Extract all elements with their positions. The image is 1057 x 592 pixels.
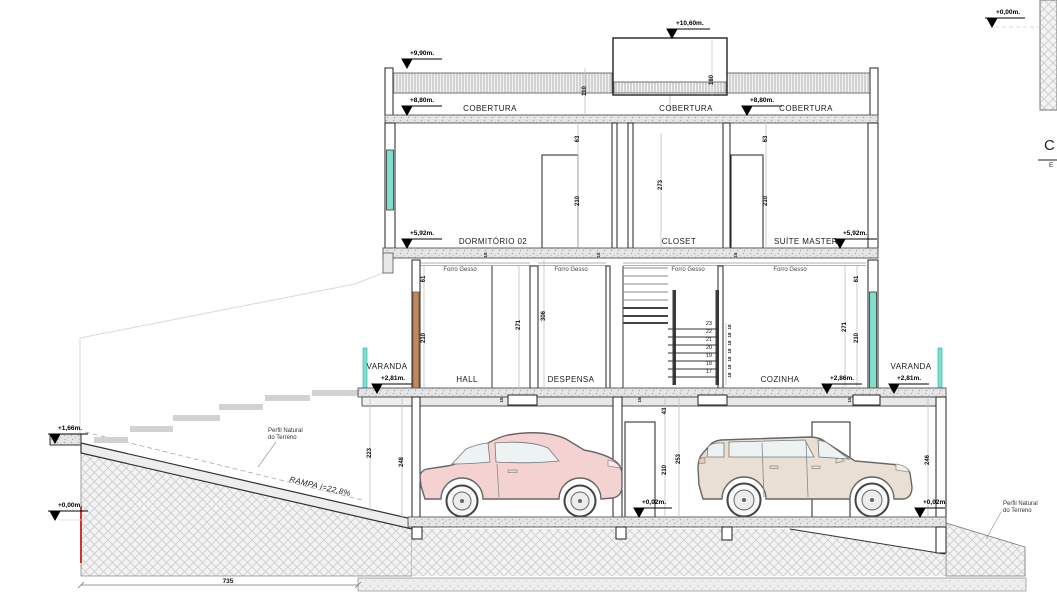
perfil-natural-right: Perfil Natural do Terreno [1003,501,1038,515]
level-8-80-right: +8,80m. [750,98,774,105]
level-9-90: +9,90m. [410,51,434,58]
level-1-66: +1,66m. [58,426,82,433]
dim-180: 180 [709,75,715,85]
tread-18: 18 [694,362,712,368]
dim-210-cozinha: 210 [854,333,860,343]
dim-43: 43 [662,408,668,415]
slab-edge-beam [383,253,393,273]
dim-15-e: 15 [638,397,643,402]
bottom-ground-band [358,578,1026,591]
label-suite-master: SUÍTE MASTER [774,238,838,246]
perfil-right-line2: do Terreno [1003,508,1038,515]
perfil-right-line1: Perfil Natural [1003,501,1038,508]
cut-subtitle-letter: E [1049,163,1053,170]
dim-15-c: 15 [734,252,739,257]
tread-20: 20 [694,346,712,352]
upper-wall-mid-a [612,123,617,248]
garage-wall-left [412,397,420,517]
cut-title-letter: C [1044,138,1055,153]
perfil-natural-left: Perfil Natural do Terreno [268,428,303,442]
upper-wall-right [868,123,878,248]
dim-246: 246 [925,455,931,465]
riser-18-5: 18 [728,356,733,361]
dim-210-hall: 210 [421,333,427,343]
label-varanda-right: VARANDA [891,363,932,371]
ceiling-vent-1 [508,395,537,405]
dim-110: 110 [582,86,588,96]
perfil-left-line1: Perfil Natural [268,428,303,435]
tread-21: 21 [694,338,712,344]
dim-210-garage: 210 [662,465,668,475]
door-dormitorio [542,155,578,248]
ceiling-vent-2 [698,395,727,405]
level-0-00-left: +0,00m. [58,503,82,510]
label-dormitorio-02: DORMITÓRIO 02 [459,238,527,246]
roof-slab [385,115,878,123]
dim-271-right: 271 [842,322,848,332]
level-8-80-left: +8,80m. [410,98,434,105]
level-0-02-right: +0,02m. [923,500,947,507]
upper-wall-mid-b [628,123,633,248]
riser-18-3: 18 [728,340,733,345]
dim-253: 253 [676,454,682,464]
perfil-left-line2: do Terreno [268,435,303,442]
dim-306: 306 [541,311,547,321]
label-forro-2: Forro Gesso [554,267,587,273]
varanda-beam-left [362,397,412,406]
dim-61-left: 61 [421,276,427,283]
building-section-drawing: COBERTURA COBERTURA COBERTURA DORMITÓRIO… [0,0,1057,592]
upper-window-glass [387,150,394,210]
dim-735-line [78,582,361,588]
wood-door-edge [413,292,419,388]
level-5-92-left: +5,92m. [410,231,434,238]
riser-18-4: 18 [728,348,733,353]
riser-18-7: 18 [728,372,733,377]
label-despensa: DESPENSA [548,376,595,384]
dim-15-a: 15 [484,252,489,257]
dim-15-d: 15 [500,397,505,402]
garage-floor-slab [408,517,946,527]
dim-15-f: 15 [848,397,853,402]
wall-despensa-stair [606,266,610,388]
wall-hall-despensa [530,266,538,388]
label-cobertura-3: COBERTURA [779,105,833,113]
label-cozinha: COZINHA [761,376,800,384]
riser-18-6: 18 [728,364,733,369]
ceiling-vent-3 [853,395,880,405]
level-0-02-left: +0,02m. [642,500,666,507]
label-hall: HALL [456,376,478,384]
level-2-86: +2,86m. [830,376,854,383]
tread-19: 19 [694,354,712,360]
upper-floor-slab [383,248,878,258]
label-varanda-left: VARANDA [367,363,408,371]
roof-hatch-left [393,73,612,93]
label-cobertura-1: COBERTURA [463,105,517,113]
upper-wall-suite [723,123,730,248]
level-0-00-topright: +0,00m. [996,10,1020,17]
level-2-81-left: +2,81m. [381,376,405,383]
riser-18-2: 18 [728,332,733,337]
perfil-leader-right [986,512,1001,539]
tread-17: 17 [694,370,712,376]
upper-floor [383,123,878,273]
tread-23: 23 [694,322,712,328]
existing-terrain-steps [94,390,358,443]
tread-22: 22 [694,330,712,336]
riser-18-1: 18 [728,324,733,329]
dim-273: 273 [658,180,664,190]
dim-15-b: 15 [597,252,602,257]
label-closet: CLOSET [662,238,696,246]
dim-248: 248 [399,457,405,467]
dim-271-left: 271 [516,320,522,330]
glass-door-right [870,292,877,388]
dim-63-left: 63 [575,136,581,143]
label-forro-1: Forro Gesso [443,267,476,273]
dim-210-dorm: 210 [575,196,581,206]
level-10-60: +10,60m. [676,21,704,28]
label-forro-4: Forro Gesso [773,267,806,273]
level-2-81-right: +2,81m. [897,376,921,383]
dim-210-suite: 210 [763,196,769,206]
sedan-car [420,433,622,517]
label-cobertura-2: COBERTURA [659,105,713,113]
level-5-92-right: +5,92m. [843,231,867,238]
dim-63-right: 63 [763,136,769,143]
section-linework [0,0,1057,592]
label-forro-3: Forro Gesso [671,267,704,273]
garage-wall-mid [613,397,622,517]
suv-car [698,437,912,517]
dim-223: 223 [367,448,373,458]
neighbor-wall-section [1040,0,1057,110]
varanda-glass-rail-right [938,348,942,392]
door-suite [731,155,763,248]
roof-hatch-right [727,73,870,93]
dim-735: 735 [223,579,234,586]
stair-post-left [673,290,677,385]
boundary-faint-line [80,273,383,443]
perfil-leader-left [258,442,276,467]
stair-post-right [716,290,720,385]
dim-61-right: 61 [854,276,860,283]
